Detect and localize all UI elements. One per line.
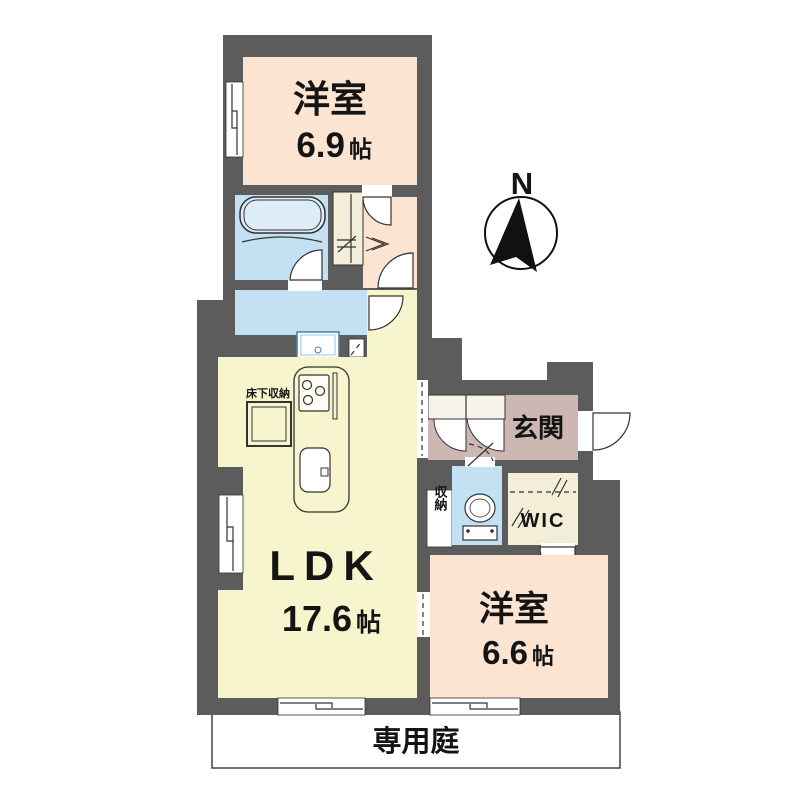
wic-label: WIC <box>521 510 566 532</box>
floor-plan-page: 専用庭 床下収納 <box>0 0 800 800</box>
room-name-label: LDK <box>269 542 382 589</box>
room-size-value: 17.6 <box>282 598 352 639</box>
window-ldk-garden <box>278 698 365 715</box>
ldk-bedroom-opening <box>417 592 430 637</box>
toilet-icon <box>463 494 497 540</box>
closet-top <box>333 192 363 265</box>
room-size-unit: 帖 <box>349 136 372 162</box>
room-size-value: 6.6 <box>482 634 528 671</box>
room-size-value: 6.9 <box>296 126 345 165</box>
room-size-unit: 帖 <box>532 644 554 669</box>
room-name-label: 洋室 <box>479 589 549 629</box>
room-name-label: 洋室 <box>293 78 367 120</box>
storage-label: 収納 <box>433 485 448 512</box>
room-washroom <box>235 290 367 335</box>
kitchen-sink-icon <box>300 448 330 492</box>
window-ldk-left <box>219 495 243 573</box>
washbasin-icon <box>297 332 339 358</box>
kitchen-counter <box>294 367 349 512</box>
floor-plan-canvas: 専用庭 床下収納 <box>0 0 800 800</box>
window-bedroom-right-garden <box>430 698 520 715</box>
window-bedroom-top-left <box>226 82 243 157</box>
room-size-unit: 帖 <box>356 609 381 637</box>
room-storage: 収納 <box>427 485 452 547</box>
entrance-step-boundary <box>417 380 428 458</box>
compass-north-label: N <box>511 166 533 201</box>
room-bedroom-top <box>243 57 417 185</box>
front-door-opening <box>578 411 593 451</box>
washroom-step-mark <box>349 339 364 357</box>
stove-icon <box>299 375 329 411</box>
underfloor-storage-label: 床下収納 <box>246 386 290 400</box>
entrance-label: 玄関 <box>512 413 564 443</box>
private-garden: 専用庭 <box>212 712 620 768</box>
garden-label: 専用庭 <box>372 724 459 758</box>
